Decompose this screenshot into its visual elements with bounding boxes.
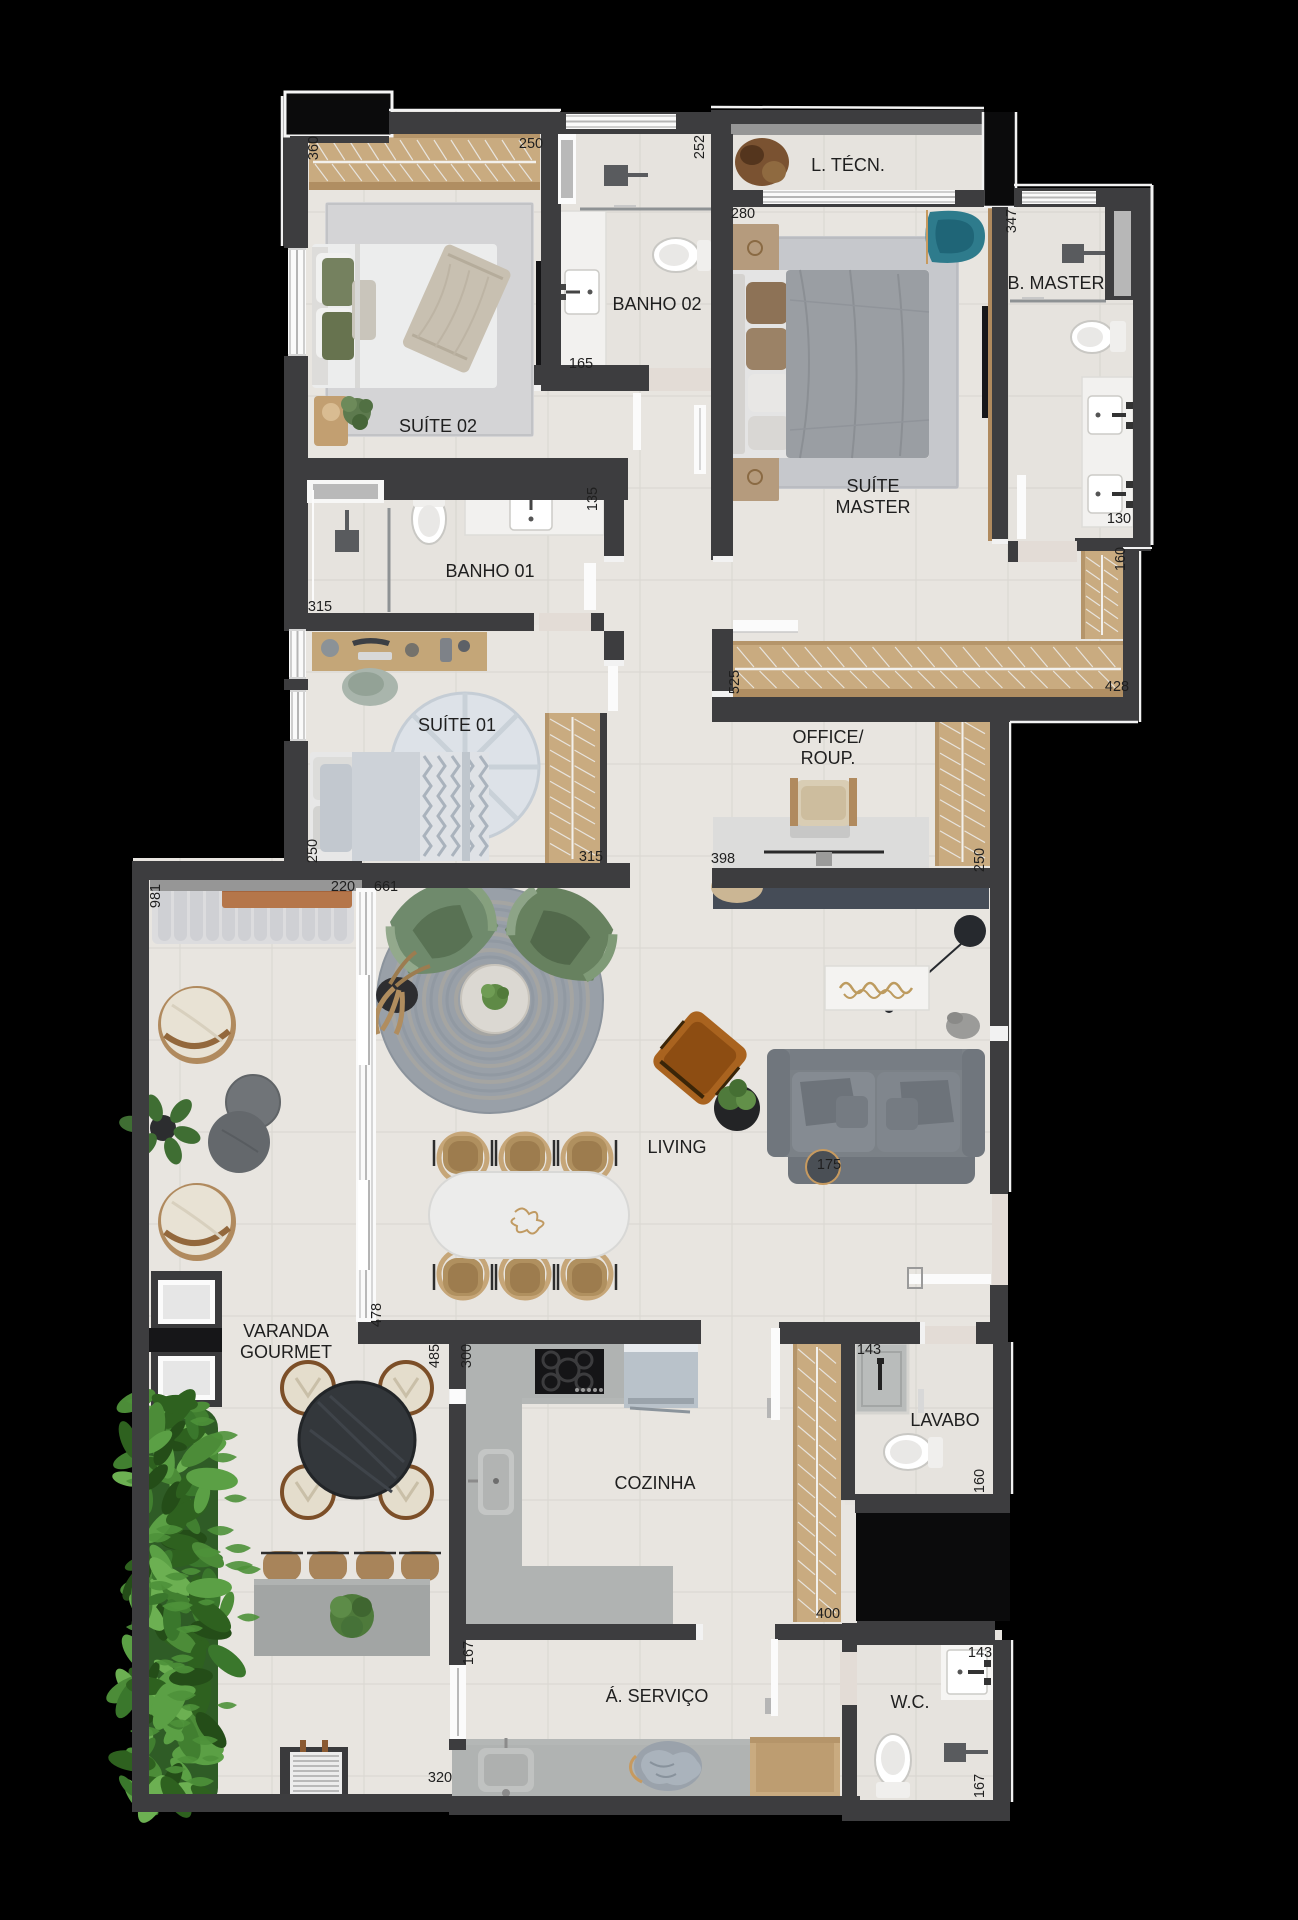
svg-text:GOURMET: GOURMET xyxy=(240,1342,332,1362)
svg-text:525: 525 xyxy=(727,670,743,694)
svg-text:250: 250 xyxy=(972,848,988,872)
svg-text:W.C.: W.C. xyxy=(891,1692,930,1712)
svg-text:252: 252 xyxy=(692,135,708,159)
svg-text:165: 165 xyxy=(569,356,593,372)
svg-text:OFFICE/: OFFICE/ xyxy=(793,727,864,747)
svg-text:143: 143 xyxy=(968,1645,992,1661)
svg-text:VARANDA: VARANDA xyxy=(243,1321,329,1341)
svg-text:160: 160 xyxy=(1113,547,1129,571)
svg-text:ROUP.: ROUP. xyxy=(801,748,856,768)
svg-text:315: 315 xyxy=(579,849,603,865)
svg-text:661: 661 xyxy=(374,879,398,895)
svg-text:Á. SERVIÇO: Á. SERVIÇO xyxy=(606,1686,709,1706)
svg-text:220: 220 xyxy=(331,879,355,895)
svg-text:250: 250 xyxy=(519,136,543,152)
svg-text:SUÍTE 02: SUÍTE 02 xyxy=(399,416,477,436)
svg-text:130: 130 xyxy=(1107,511,1131,527)
svg-text:LAVABO: LAVABO xyxy=(910,1410,979,1430)
svg-text:SUÍTE 01: SUÍTE 01 xyxy=(418,715,496,735)
svg-text:250: 250 xyxy=(305,839,321,863)
svg-text:280: 280 xyxy=(731,206,755,222)
svg-text:347: 347 xyxy=(1004,209,1020,233)
svg-text:400: 400 xyxy=(816,1606,840,1622)
svg-text:485: 485 xyxy=(427,1344,443,1368)
svg-text:SUÍTE: SUÍTE xyxy=(846,476,899,496)
svg-text:MASTER: MASTER xyxy=(835,497,910,517)
svg-text:LIVING: LIVING xyxy=(647,1137,706,1157)
svg-text:360: 360 xyxy=(306,136,322,160)
svg-text:478: 478 xyxy=(369,1303,385,1327)
svg-text:143: 143 xyxy=(857,1342,881,1358)
svg-text:160: 160 xyxy=(972,1469,988,1493)
svg-text:167: 167 xyxy=(461,1641,477,1665)
svg-text:175: 175 xyxy=(817,1157,841,1173)
svg-text:135: 135 xyxy=(585,487,601,511)
svg-text:BANHO 01: BANHO 01 xyxy=(445,561,534,581)
svg-text:428: 428 xyxy=(1105,679,1129,695)
svg-text:167: 167 xyxy=(972,1774,988,1798)
svg-text:398: 398 xyxy=(711,851,735,867)
svg-text:B. MASTER: B. MASTER xyxy=(1007,273,1104,293)
svg-text:315: 315 xyxy=(308,599,332,615)
svg-text:L. TÉCN.: L. TÉCN. xyxy=(811,155,885,175)
svg-text:COZINHA: COZINHA xyxy=(615,1473,696,1493)
svg-text:320: 320 xyxy=(428,1770,452,1786)
svg-text:981: 981 xyxy=(148,884,164,908)
svg-text:300: 300 xyxy=(459,1344,475,1368)
svg-text:BANHO 02: BANHO 02 xyxy=(612,294,701,314)
